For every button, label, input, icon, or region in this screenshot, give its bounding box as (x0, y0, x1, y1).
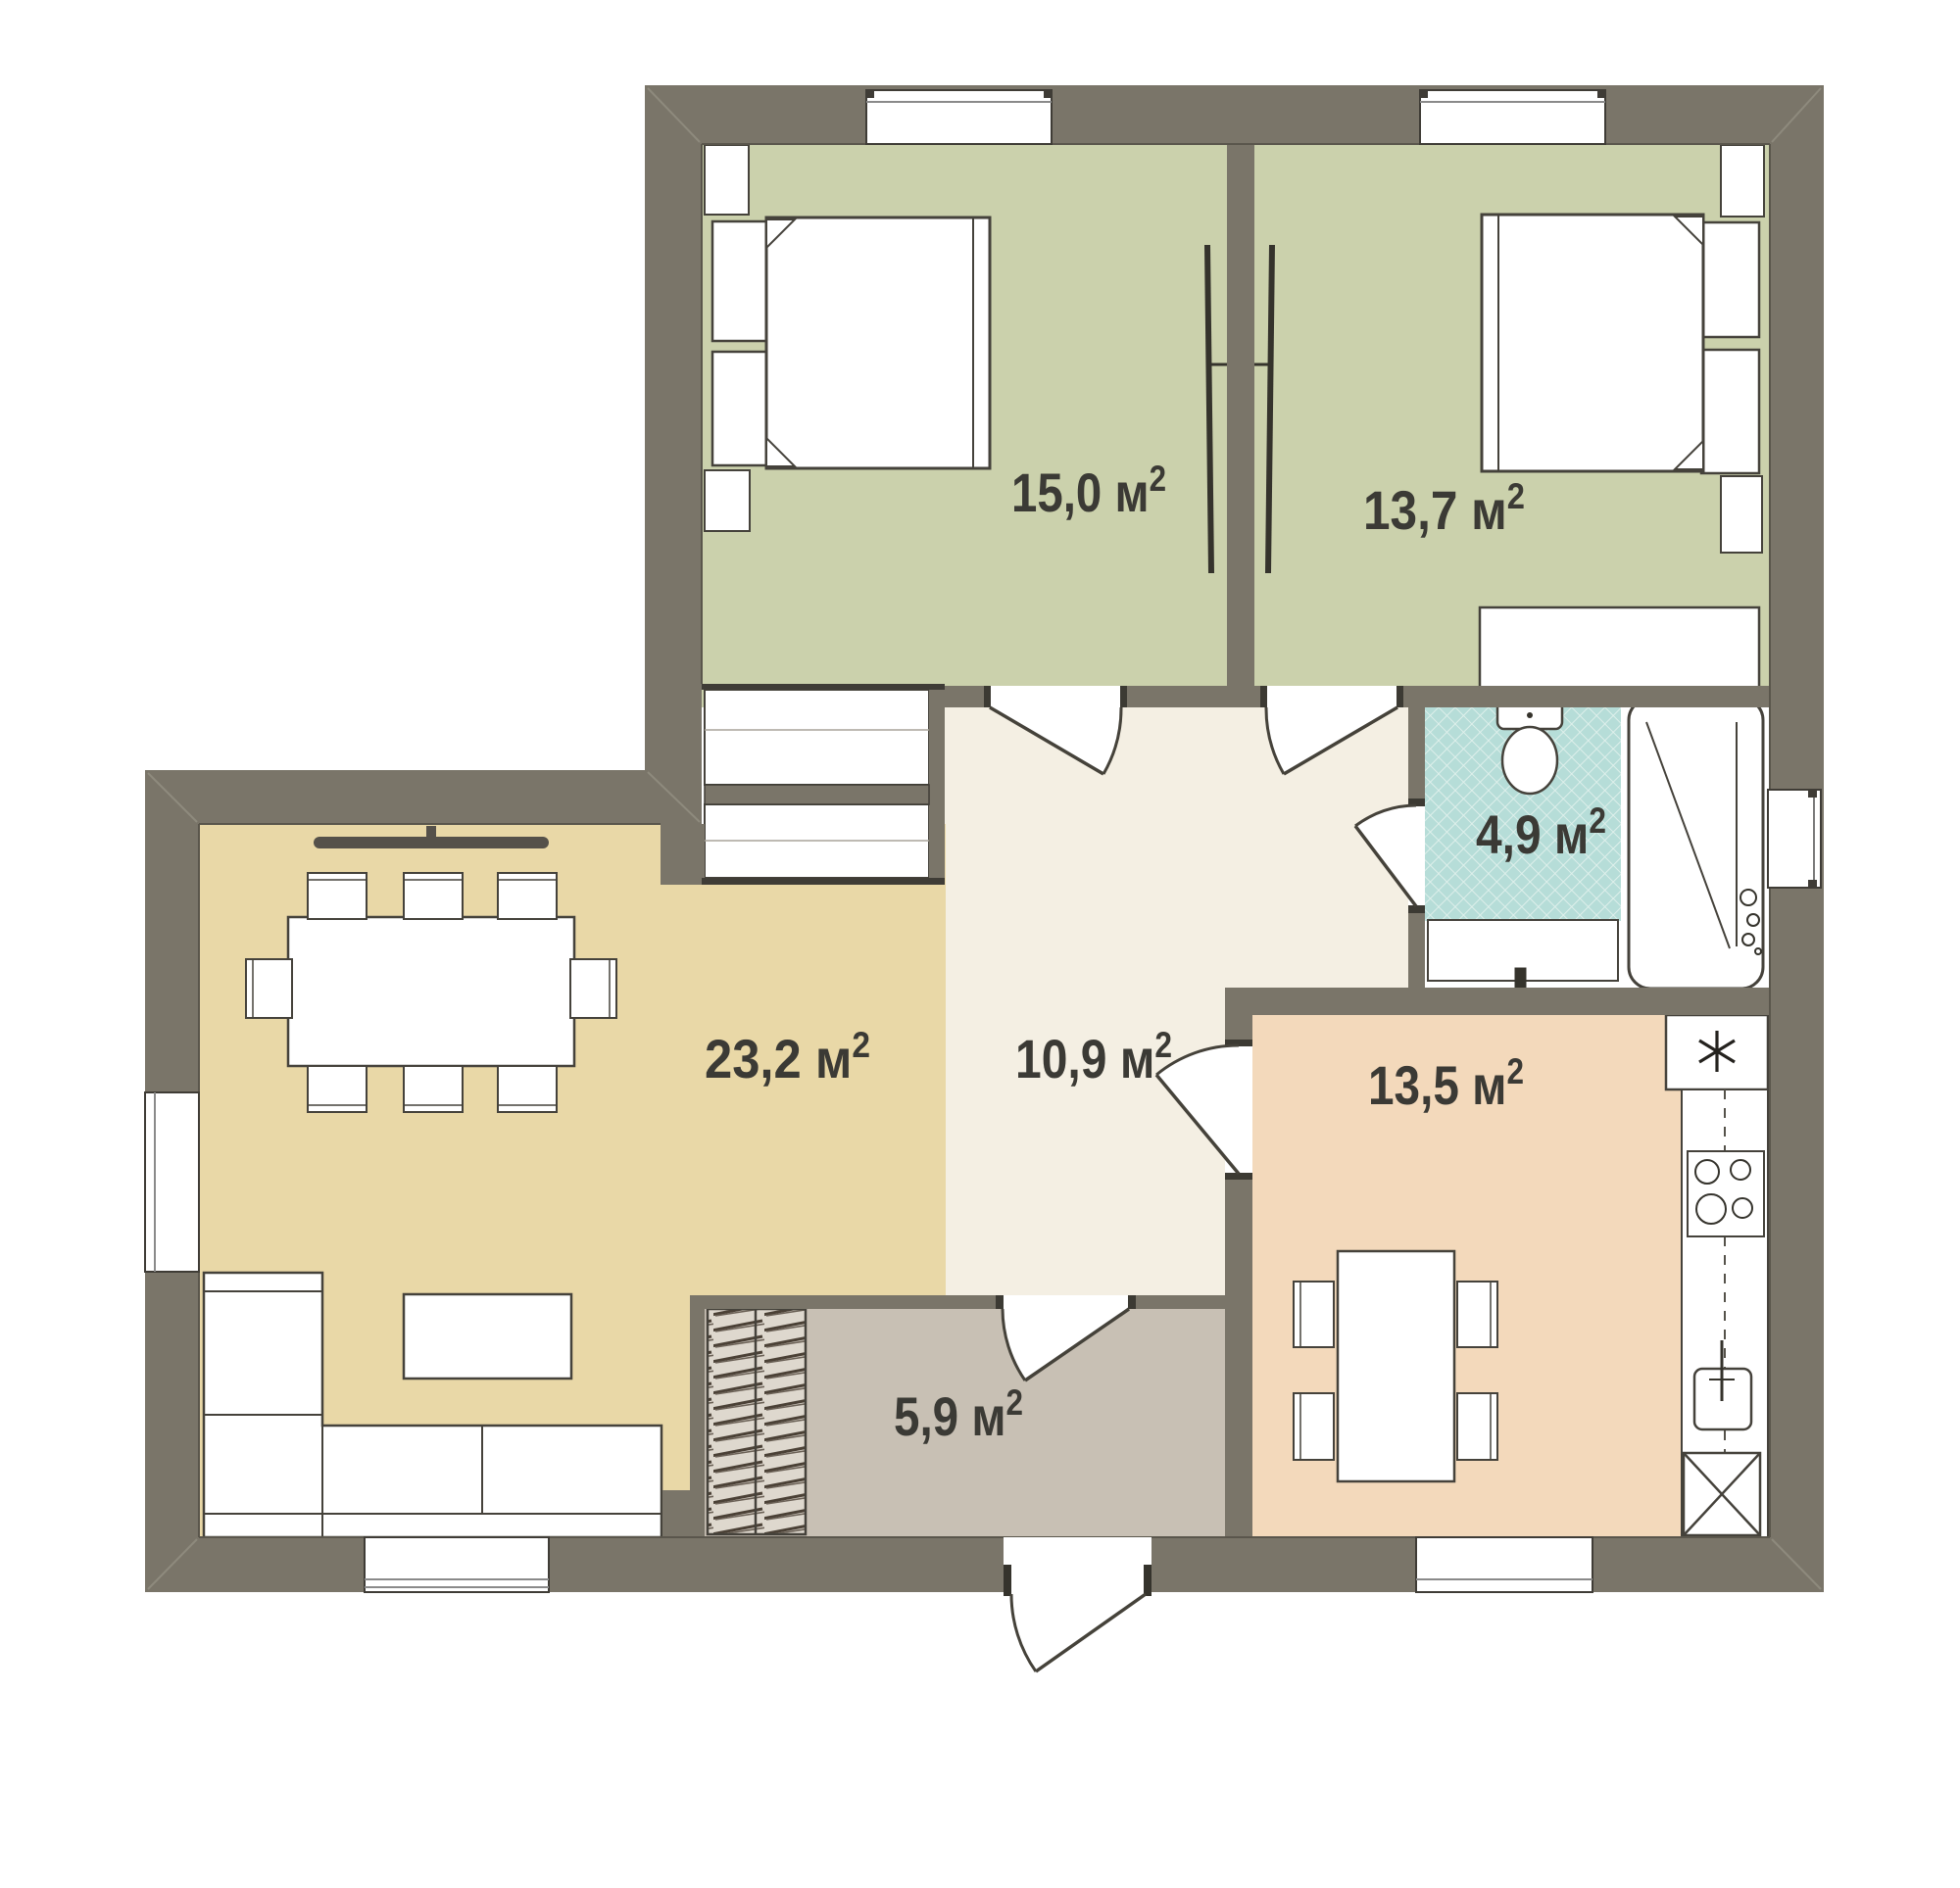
svg-text:5,9 м2: 5,9 м2 (894, 1382, 1023, 1447)
svg-text:15,0 м2: 15,0 м2 (1011, 459, 1166, 523)
svg-text:23,2 м2: 23,2 м2 (705, 1025, 870, 1089)
svg-text:4,9 м2: 4,9 м2 (1476, 800, 1606, 865)
svg-text:10,9 м2: 10,9 м2 (1015, 1025, 1172, 1089)
svg-text:13,7 м2: 13,7 м2 (1363, 476, 1525, 541)
svg-text:13,5 м2: 13,5 м2 (1368, 1051, 1524, 1116)
